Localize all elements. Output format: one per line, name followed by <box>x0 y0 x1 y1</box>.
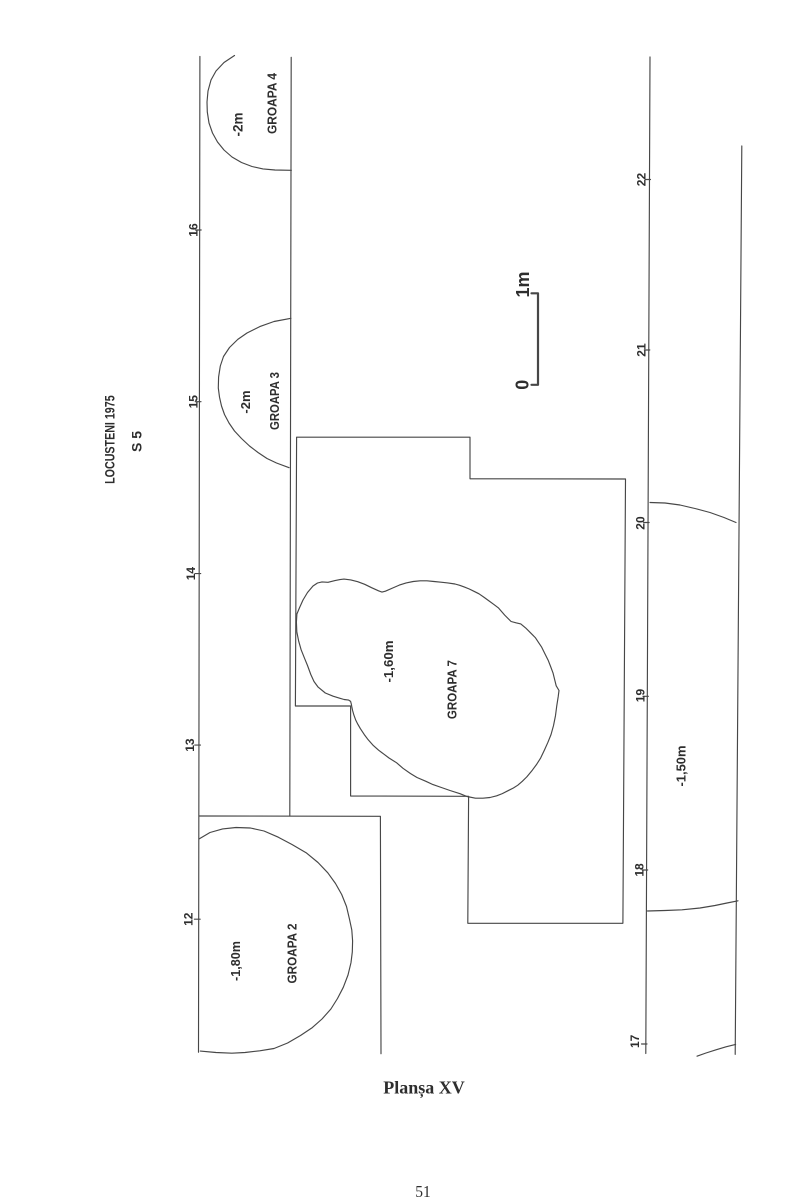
svg-text:-2m: -2m <box>238 390 253 413</box>
svg-text:22: 22 <box>634 173 648 187</box>
svg-text:GROAPA 4: GROAPA 4 <box>266 73 280 134</box>
svg-text:14: 14 <box>184 567 198 581</box>
svg-text:-1,50m: -1,50m <box>674 746 689 787</box>
svg-text:13: 13 <box>183 738 197 752</box>
svg-text:-1,60m: -1,60m <box>381 641 396 683</box>
svg-text:LOCUSTENI 1975: LOCUSTENI 1975 <box>102 395 118 484</box>
svg-text:16: 16 <box>186 223 200 237</box>
svg-text:-1,80m: -1,80m <box>228 941 243 981</box>
svg-text:GROAPA 7: GROAPA 7 <box>446 660 460 719</box>
svg-text:19: 19 <box>634 689 648 703</box>
svg-text:0: 0 <box>512 380 532 390</box>
svg-text:12: 12 <box>181 912 195 926</box>
svg-text:S 5: S 5 <box>129 431 145 452</box>
svg-text:GROAPA 2: GROAPA 2 <box>286 923 300 983</box>
svg-text:51: 51 <box>415 1182 431 1200</box>
svg-text:17: 17 <box>628 1034 642 1048</box>
svg-text:15: 15 <box>186 395 200 409</box>
svg-text:1m: 1m <box>513 271 533 297</box>
svg-text:21: 21 <box>634 343 648 357</box>
svg-text:-2m: -2m <box>230 112 245 136</box>
svg-text:Planșa XV: Planșa XV <box>383 1078 465 1099</box>
svg-text:20: 20 <box>634 516 648 530</box>
svg-text:18: 18 <box>633 863 647 877</box>
svg-text:GROAPA 3: GROAPA 3 <box>268 372 282 430</box>
